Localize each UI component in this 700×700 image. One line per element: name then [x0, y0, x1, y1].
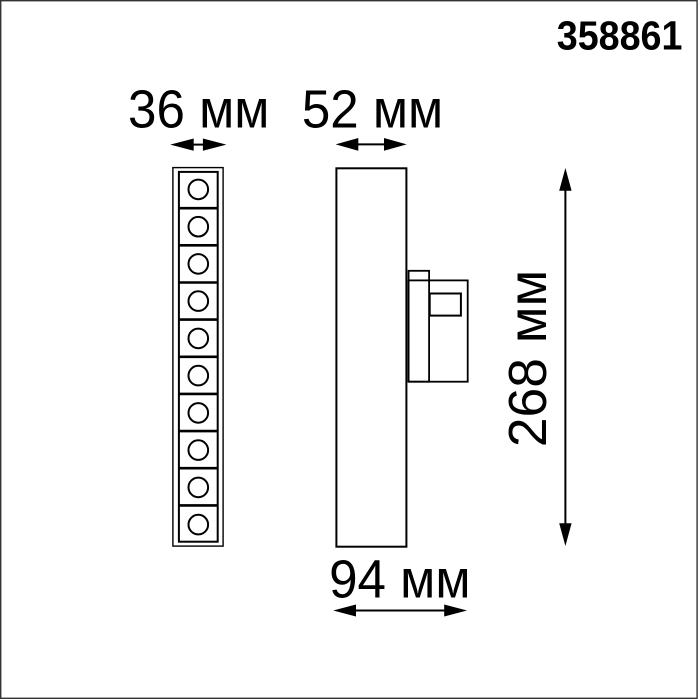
svg-text:52 мм: 52 мм [302, 80, 443, 139]
svg-text:268 мм: 268 мм [499, 270, 558, 447]
svg-text:36 мм: 36 мм [128, 80, 269, 139]
svg-text:94 мм: 94 мм [329, 550, 470, 609]
svg-text:358861: 358861 [557, 13, 683, 59]
